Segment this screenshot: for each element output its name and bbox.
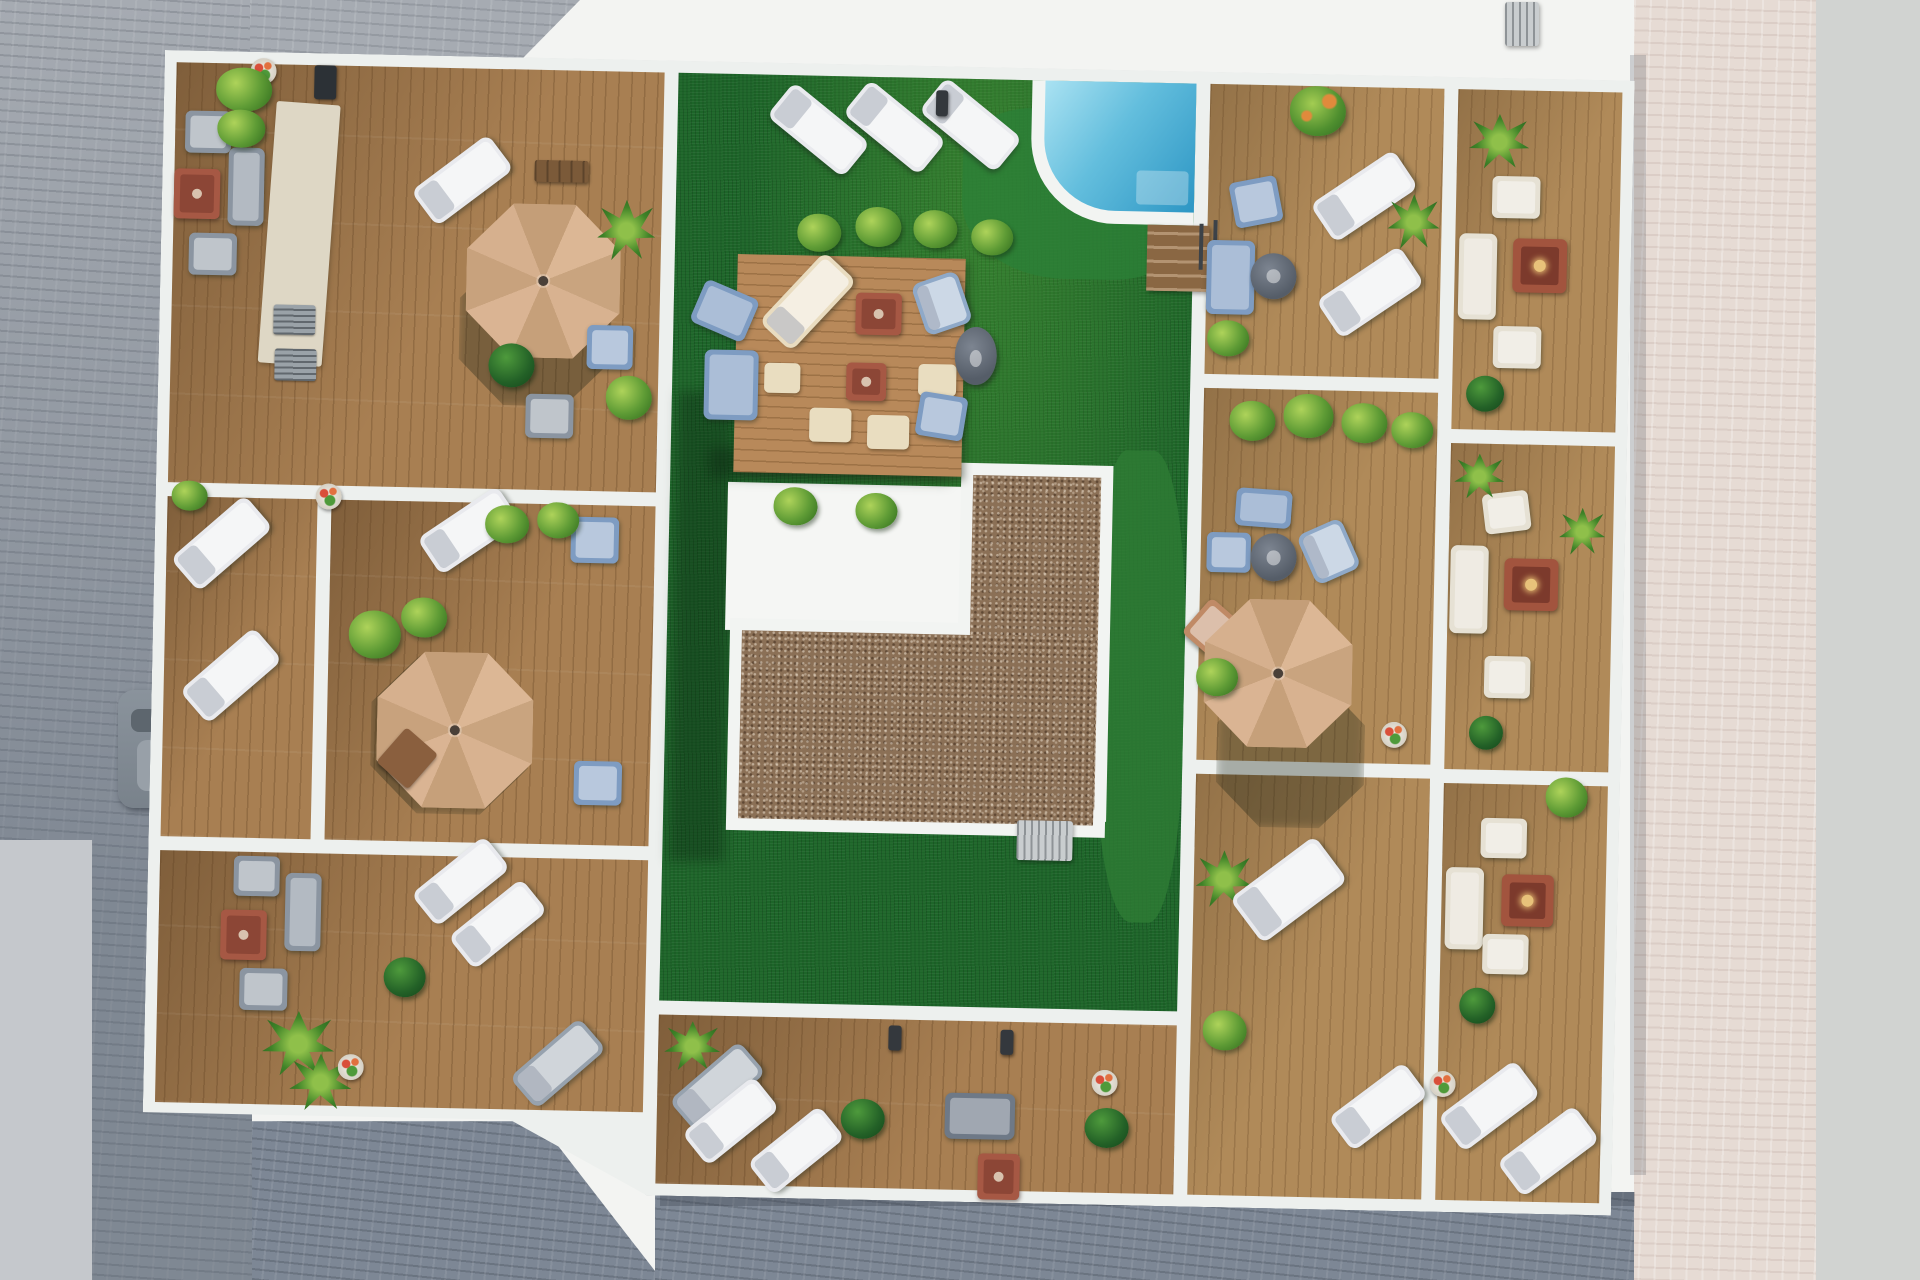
blue-garden-sofa — [1234, 487, 1293, 529]
terrace-bottom-right — [1187, 774, 1430, 1200]
terracotta-coffee-table — [220, 909, 267, 960]
white-armchair — [1480, 818, 1527, 859]
orange-flowering-shrub — [1289, 86, 1346, 137]
lawn-light-post — [936, 90, 949, 116]
shrub — [217, 109, 266, 148]
shrub — [348, 610, 401, 659]
white-armchair — [1493, 326, 1542, 369]
pool-steps — [1146, 225, 1209, 292]
sidewalk-left-light — [0, 840, 92, 1280]
shrub — [216, 67, 273, 112]
white-armchair — [1492, 176, 1541, 219]
gray-armchair — [233, 856, 280, 897]
gray-armchair — [188, 233, 237, 276]
gravel-roof-horizontal — [738, 630, 1097, 825]
shrub — [1391, 412, 1434, 449]
shrub — [971, 219, 1014, 256]
shrub — [1545, 777, 1588, 818]
shrub — [1341, 403, 1388, 444]
terracotta-coffee-table — [977, 1153, 1020, 1200]
shrub — [485, 505, 530, 544]
shrub — [1196, 658, 1239, 697]
wooden-bench — [534, 160, 588, 183]
blue-garden-sofa — [703, 349, 758, 420]
street-right-pink-cobbles — [1634, 0, 1816, 1280]
rooftop-ac-unit — [1505, 2, 1539, 46]
cream-sofa — [1458, 233, 1498, 320]
shrub — [1207, 320, 1250, 357]
pavement-far-right — [1816, 0, 1920, 1280]
seat-cushion — [867, 415, 910, 450]
white-armchair — [1482, 934, 1529, 975]
dark-gray-sofa — [944, 1093, 1015, 1140]
counter-sink — [273, 304, 316, 335]
blue-armchair — [914, 391, 968, 442]
shrub — [913, 210, 958, 249]
shrub — [855, 207, 902, 248]
white-armchair — [1484, 656, 1531, 699]
barbecue-grill — [314, 65, 337, 99]
blue-armchair — [586, 325, 633, 370]
terracotta-coffee-table — [855, 293, 902, 336]
white-armchair — [1481, 490, 1531, 535]
bollard — [1000, 1030, 1014, 1055]
courtyard-ac-unit — [1016, 820, 1073, 861]
aerial-render-canvas — [0, 0, 1920, 1280]
counter-sink — [274, 348, 317, 381]
shrub — [1229, 400, 1276, 441]
shrub — [797, 213, 842, 252]
gray-sofa — [284, 873, 322, 952]
bollard — [888, 1025, 902, 1050]
blue-garden-sofa — [1206, 240, 1256, 315]
building-rooftop — [141, 50, 1634, 1216]
seat-cushion — [809, 408, 852, 443]
fire-pit-table — [1512, 238, 1567, 293]
cream-sofa — [1449, 545, 1489, 634]
shrub — [1283, 394, 1334, 439]
gray-sofa — [227, 147, 265, 226]
terracotta-coffee-table — [173, 168, 220, 219]
shrub — [401, 597, 448, 638]
fire-pit-table — [1504, 558, 1559, 611]
shrub — [537, 502, 580, 539]
shrub — [605, 375, 652, 420]
gray-armchair — [239, 968, 288, 1011]
shrub — [773, 487, 818, 526]
cream-sofa — [1444, 867, 1484, 950]
gray-armchair — [525, 394, 574, 439]
fire-pit-table — [1501, 874, 1554, 927]
shrub — [171, 480, 208, 511]
blue-armchair — [1228, 175, 1284, 229]
shrub — [1202, 1010, 1247, 1051]
building-shadow-right — [1630, 55, 1646, 1175]
terracotta-coffee-table — [846, 362, 887, 401]
blue-armchair — [1206, 532, 1251, 573]
seat-cushion — [764, 363, 801, 394]
shrub — [855, 493, 898, 530]
pool-underwater-bench — [1136, 170, 1189, 205]
blue-armchair — [573, 761, 622, 806]
